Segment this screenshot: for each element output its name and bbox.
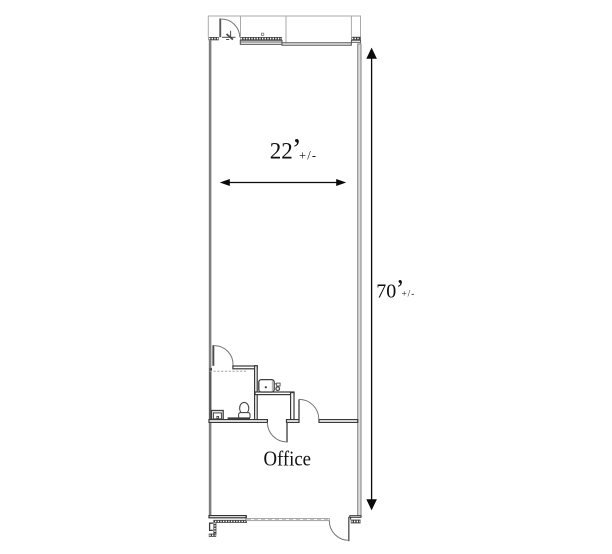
svg-text:Office: Office xyxy=(264,447,312,471)
svg-text:+/-: +/- xyxy=(402,290,416,300)
svg-text:70’: 70’ xyxy=(376,275,404,304)
svg-text:+/-: +/- xyxy=(299,149,317,163)
